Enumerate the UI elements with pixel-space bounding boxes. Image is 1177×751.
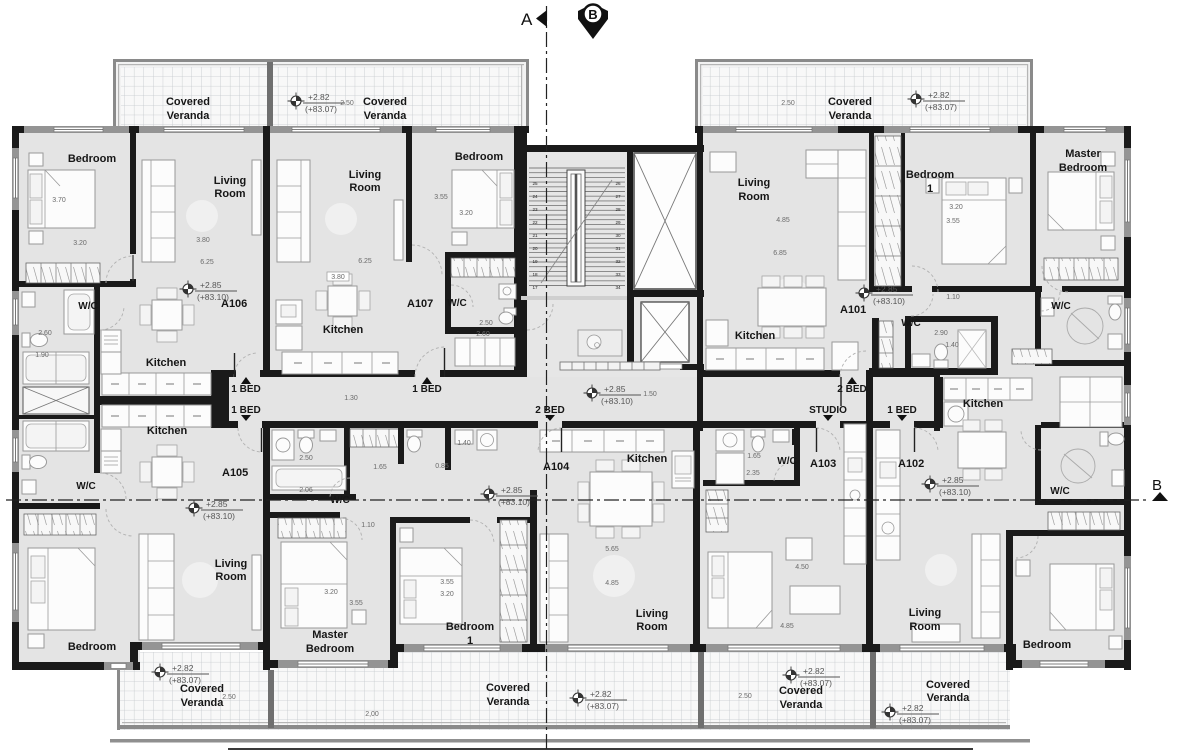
svg-text:(+83.10): (+83.10) bbox=[197, 292, 229, 302]
svg-text:A: A bbox=[521, 10, 533, 29]
svg-text:W/C: W/C bbox=[1051, 301, 1070, 312]
svg-text:Bedroom: Bedroom bbox=[68, 641, 117, 653]
svg-text:A103: A103 bbox=[810, 458, 836, 470]
svg-text:+2.82: +2.82 bbox=[590, 689, 612, 699]
svg-text:2.60: 2.60 bbox=[38, 330, 52, 337]
svg-text:A104: A104 bbox=[543, 461, 570, 473]
svg-text:Master: Master bbox=[1065, 148, 1101, 160]
svg-text:2.35: 2.35 bbox=[746, 470, 760, 477]
svg-text:A101: A101 bbox=[840, 304, 866, 316]
svg-text:Bedroom: Bedroom bbox=[446, 621, 495, 633]
svg-text:1 BED: 1 BED bbox=[412, 384, 441, 395]
svg-text:Room: Room bbox=[214, 188, 245, 200]
svg-text:27: 27 bbox=[615, 194, 621, 199]
svg-text:+2.82: +2.82 bbox=[308, 92, 330, 102]
svg-text:1.10: 1.10 bbox=[946, 294, 960, 301]
svg-text:Kitchen: Kitchen bbox=[963, 398, 1004, 410]
svg-text:Room: Room bbox=[215, 571, 246, 583]
svg-text:+2.82: +2.82 bbox=[902, 703, 924, 713]
svg-text:1.65: 1.65 bbox=[373, 464, 387, 471]
svg-text:32: 32 bbox=[615, 259, 621, 264]
svg-text:1 BED: 1 BED bbox=[231, 384, 260, 395]
svg-text:Kitchen: Kitchen bbox=[147, 425, 188, 437]
svg-text:2.60: 2.60 bbox=[476, 331, 490, 338]
svg-text:Kitchen: Kitchen bbox=[735, 330, 776, 342]
svg-text:Covered: Covered bbox=[166, 96, 210, 108]
svg-text:2 BED: 2 BED bbox=[837, 384, 866, 395]
svg-text:(+83.07): (+83.07) bbox=[800, 678, 832, 688]
svg-text:3.80: 3.80 bbox=[331, 274, 345, 281]
svg-text:5.65: 5.65 bbox=[605, 546, 619, 553]
svg-text:2.06: 2.06 bbox=[299, 487, 313, 494]
svg-text:1: 1 bbox=[467, 635, 473, 647]
svg-text:3.20: 3.20 bbox=[949, 204, 963, 211]
svg-text:Living: Living bbox=[636, 608, 668, 620]
svg-text:(+83.10): (+83.10) bbox=[601, 396, 633, 406]
svg-text:B: B bbox=[588, 7, 597, 22]
svg-text:(+83.10): (+83.10) bbox=[939, 487, 971, 497]
svg-text:W/C: W/C bbox=[78, 301, 97, 312]
svg-text:Kitchen: Kitchen bbox=[146, 357, 187, 369]
svg-text:1.40: 1.40 bbox=[457, 440, 471, 447]
svg-text:1.50: 1.50 bbox=[643, 391, 657, 398]
svg-text:3.55: 3.55 bbox=[434, 194, 448, 201]
svg-text:1.40: 1.40 bbox=[945, 342, 959, 349]
svg-text:(+83.10): (+83.10) bbox=[498, 497, 530, 507]
svg-text:2,00: 2,00 bbox=[365, 711, 379, 718]
svg-text:6.25: 6.25 bbox=[200, 259, 214, 266]
svg-text:A102: A102 bbox=[898, 458, 924, 470]
svg-text:6.85: 6.85 bbox=[773, 250, 787, 257]
svg-text:28: 28 bbox=[615, 207, 621, 212]
svg-text:+2.85: +2.85 bbox=[206, 499, 228, 509]
svg-text:Veranda: Veranda bbox=[487, 696, 531, 708]
svg-text:4.85: 4.85 bbox=[605, 580, 619, 587]
svg-text:Covered: Covered bbox=[926, 679, 970, 691]
svg-text:Bedroom: Bedroom bbox=[906, 169, 955, 181]
svg-text:W/C: W/C bbox=[901, 318, 920, 329]
svg-text:1.90: 1.90 bbox=[35, 352, 49, 359]
svg-text:1 BED: 1 BED bbox=[231, 405, 260, 416]
svg-text:2.50: 2.50 bbox=[738, 693, 752, 700]
svg-text:(+83.07): (+83.07) bbox=[925, 102, 957, 112]
svg-text:2.50: 2.50 bbox=[781, 100, 795, 107]
svg-text:2 BED: 2 BED bbox=[535, 405, 564, 416]
svg-text:W/C: W/C bbox=[76, 481, 95, 492]
svg-text:+2.82: +2.82 bbox=[172, 663, 194, 673]
svg-text:3.70: 3.70 bbox=[52, 197, 66, 204]
svg-text:1.10: 1.10 bbox=[361, 522, 375, 529]
svg-text:(+83.10): (+83.10) bbox=[203, 511, 235, 521]
svg-text:+2.85: +2.85 bbox=[876, 284, 898, 294]
svg-text:Bedroom: Bedroom bbox=[1023, 639, 1072, 651]
svg-text:3.20: 3.20 bbox=[73, 240, 87, 247]
svg-text:Living: Living bbox=[349, 169, 381, 181]
svg-text:2.50: 2.50 bbox=[340, 100, 354, 107]
svg-text:6.25: 6.25 bbox=[358, 258, 372, 265]
svg-text:4.50: 4.50 bbox=[795, 564, 809, 571]
svg-text:2.50: 2.50 bbox=[479, 320, 493, 327]
svg-text:2.90: 2.90 bbox=[934, 330, 948, 337]
svg-text:(+83.07): (+83.07) bbox=[899, 715, 931, 725]
svg-text:Living: Living bbox=[909, 607, 941, 619]
svg-text:Living: Living bbox=[214, 175, 246, 187]
svg-text:W/C: W/C bbox=[777, 456, 796, 467]
svg-text:29: 29 bbox=[615, 220, 621, 225]
svg-text:3.55: 3.55 bbox=[440, 579, 454, 586]
svg-text:3.20: 3.20 bbox=[440, 591, 454, 598]
svg-text:3.20: 3.20 bbox=[459, 210, 473, 217]
svg-text:26: 26 bbox=[615, 181, 621, 186]
svg-text:Veranda: Veranda bbox=[927, 692, 971, 704]
svg-text:+2.82: +2.82 bbox=[928, 90, 950, 100]
svg-text:1.65: 1.65 bbox=[747, 453, 761, 460]
svg-text:3.55: 3.55 bbox=[946, 218, 960, 225]
svg-text:+2.85: +2.85 bbox=[501, 485, 523, 495]
svg-text:34: 34 bbox=[615, 285, 621, 290]
svg-text:21: 21 bbox=[532, 233, 538, 238]
svg-text:1: 1 bbox=[927, 183, 933, 195]
svg-text:Kitchen: Kitchen bbox=[323, 324, 364, 336]
svg-text:Master: Master bbox=[312, 629, 348, 641]
svg-text:1 BED: 1 BED bbox=[887, 405, 916, 416]
svg-text:4.85: 4.85 bbox=[780, 623, 794, 630]
svg-text:Covered: Covered bbox=[363, 96, 407, 108]
svg-text:30: 30 bbox=[615, 233, 621, 238]
svg-text:Kitchen: Kitchen bbox=[627, 453, 668, 465]
svg-text:Covered: Covered bbox=[828, 96, 872, 108]
svg-text:Living: Living bbox=[215, 558, 247, 570]
svg-text:A105: A105 bbox=[222, 467, 248, 479]
svg-text:2.50: 2.50 bbox=[299, 455, 313, 462]
svg-text:31: 31 bbox=[615, 246, 621, 251]
svg-text:2.50: 2.50 bbox=[222, 694, 236, 701]
svg-text:Bedroom: Bedroom bbox=[455, 151, 504, 163]
svg-text:4.85: 4.85 bbox=[776, 217, 790, 224]
svg-text:Room: Room bbox=[909, 621, 940, 633]
svg-text:Veranda: Veranda bbox=[181, 697, 225, 709]
svg-text:3.55: 3.55 bbox=[349, 600, 363, 607]
svg-text:33: 33 bbox=[615, 272, 621, 277]
svg-text:20: 20 bbox=[532, 246, 538, 251]
svg-text:Bedroom: Bedroom bbox=[306, 643, 355, 655]
svg-text:+2.85: +2.85 bbox=[942, 475, 964, 485]
svg-text:Veranda: Veranda bbox=[364, 110, 408, 122]
svg-text:3.20: 3.20 bbox=[324, 589, 338, 596]
svg-text:STUDIO: STUDIO bbox=[809, 405, 847, 416]
svg-text:18: 18 bbox=[532, 272, 538, 277]
svg-text:Room: Room bbox=[636, 621, 667, 633]
svg-text:17: 17 bbox=[532, 285, 538, 290]
svg-text:Covered: Covered bbox=[486, 682, 530, 694]
svg-text:Veranda: Veranda bbox=[829, 110, 873, 122]
svg-text:1.30: 1.30 bbox=[344, 395, 358, 402]
svg-text:19: 19 bbox=[532, 259, 538, 264]
svg-text:25: 25 bbox=[532, 181, 538, 186]
svg-text:W/C: W/C bbox=[1050, 486, 1069, 497]
svg-text:Bedroom: Bedroom bbox=[68, 153, 117, 165]
svg-text:Living: Living bbox=[738, 177, 770, 189]
svg-text:B: B bbox=[1152, 477, 1162, 494]
svg-text:Veranda: Veranda bbox=[167, 110, 211, 122]
svg-text:W/C: W/C bbox=[447, 298, 466, 309]
svg-text:W/C: W/C bbox=[330, 495, 349, 506]
svg-text:(+83.07): (+83.07) bbox=[169, 675, 201, 685]
svg-text:Room: Room bbox=[349, 182, 380, 194]
svg-text:23: 23 bbox=[532, 207, 538, 212]
svg-text:+2.82: +2.82 bbox=[803, 666, 825, 676]
svg-text:Room: Room bbox=[738, 191, 769, 203]
svg-text:(+83.10): (+83.10) bbox=[873, 296, 905, 306]
svg-text:3.80: 3.80 bbox=[196, 237, 210, 244]
svg-text:Bedroom: Bedroom bbox=[1059, 162, 1108, 174]
svg-text:+2.85: +2.85 bbox=[200, 280, 222, 290]
svg-text:+2.85: +2.85 bbox=[604, 384, 626, 394]
svg-text:A107: A107 bbox=[407, 298, 433, 310]
svg-text:0.85: 0.85 bbox=[435, 463, 449, 470]
svg-text:Veranda: Veranda bbox=[780, 699, 824, 711]
svg-text:22: 22 bbox=[532, 220, 538, 225]
svg-text:24: 24 bbox=[532, 194, 538, 199]
svg-text:(+83.07): (+83.07) bbox=[587, 701, 619, 711]
svg-text:(+83.07): (+83.07) bbox=[305, 104, 337, 114]
